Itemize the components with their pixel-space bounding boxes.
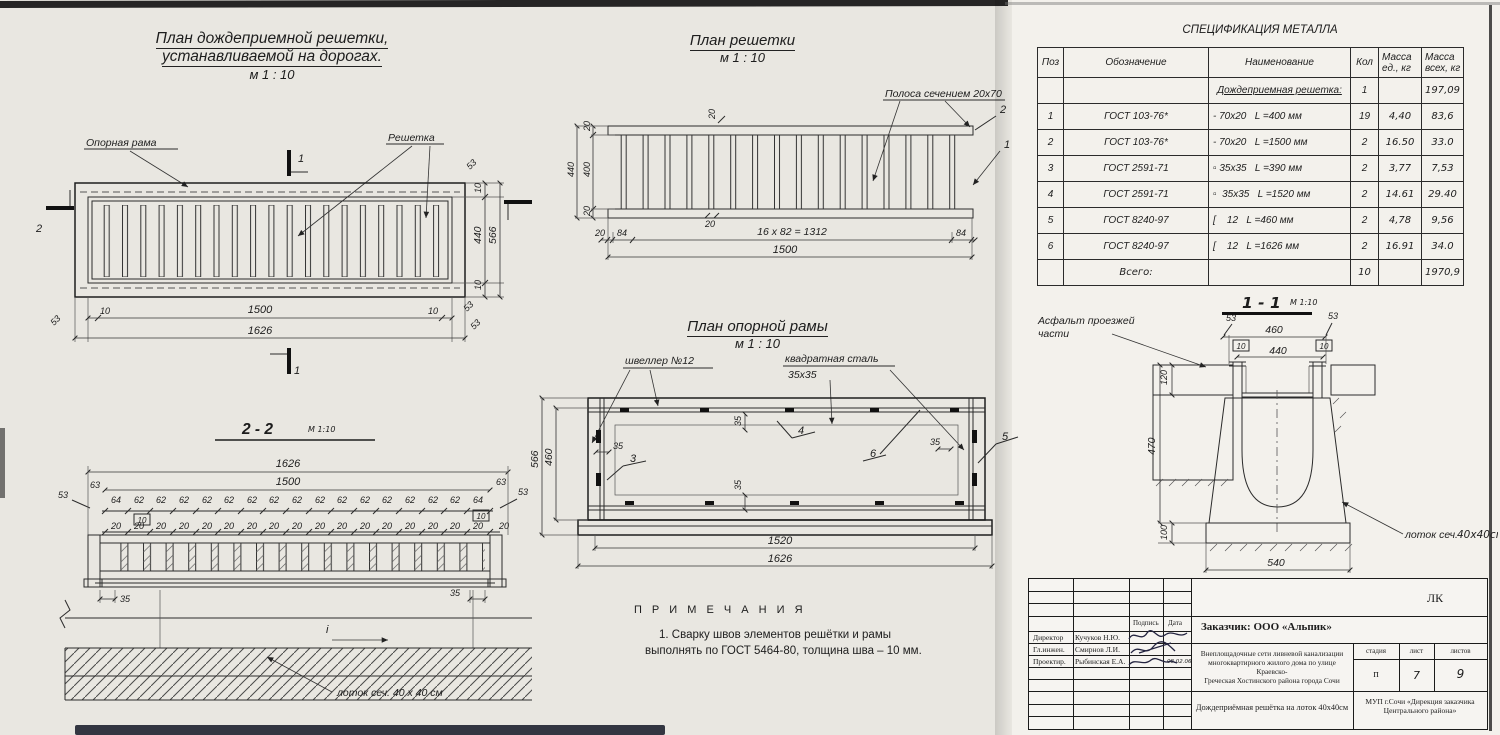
dim-label: 84 bbox=[956, 228, 966, 238]
title-line: План дождеприемной решетки, bbox=[156, 30, 389, 49]
spec-table: Поз Обозначение Наименование Кол Массаед… bbox=[1037, 47, 1464, 286]
dim-label: 20 bbox=[449, 521, 460, 531]
plan-grate-drawing: Полоса сечением 20x70 2 1 20 400 20 440 bbox=[555, 85, 1015, 280]
section-1-1-drawing: 1 - 1 М 1:10 Асфальт проезжей части 53 5… bbox=[1020, 290, 1498, 625]
dim-label: 62 bbox=[382, 495, 392, 505]
grate-geometry bbox=[608, 126, 973, 218]
dim-label: 566 bbox=[487, 226, 499, 244]
dim-label: 53 bbox=[1226, 313, 1236, 323]
person-name: Смирнов Л.И. bbox=[1075, 645, 1120, 654]
dim-label: 10 bbox=[477, 512, 486, 521]
drawing-sheet: План дождеприемной решетки, устанавливае… bbox=[0, 0, 1500, 735]
col-header: Обозначение bbox=[1064, 48, 1209, 78]
dim-label: 10 bbox=[428, 306, 438, 316]
title-line: План решетки bbox=[690, 32, 795, 51]
dim-label: 10 bbox=[1237, 342, 1246, 351]
col-header: Поз bbox=[1038, 48, 1064, 78]
org-name: МУП г.Сочи «Дирекция заказчикаЦентрально… bbox=[1355, 697, 1485, 715]
plan-frame-drawing: швеллер №12 квадратная сталь 35x35 bbox=[530, 318, 1030, 583]
ground-and-channel: i лоток сеч. 40 x 40 см bbox=[60, 590, 532, 700]
dim-label: 20 bbox=[110, 521, 121, 531]
table-row: 4ГОСТ 2591-71 ▫ 35x35 L =1520 мм 214.612… bbox=[1038, 182, 1464, 208]
sheets-value: 9 bbox=[1434, 667, 1487, 681]
dim-label: 1520 bbox=[768, 535, 793, 547]
role-label: Гл.инжен. bbox=[1033, 645, 1065, 654]
lotok-label: лоток сеч. 40 x 40 см bbox=[336, 687, 443, 699]
dim-label: 63 bbox=[90, 480, 100, 490]
dim-label: 20 bbox=[155, 521, 166, 531]
table-row: 3ГОСТ 2591-71 ▫ 35x35 L =390 мм 23,777,5… bbox=[1038, 156, 1464, 182]
dimensions-left: 120 470 100 bbox=[1146, 365, 1206, 543]
asphalt-label-l1: Асфальт проезжей bbox=[1037, 315, 1135, 327]
spec-title: СПЕЦИФИКАЦИЯ МЕТАЛЛА bbox=[1100, 24, 1420, 36]
sheets-header: листов bbox=[1434, 647, 1487, 655]
dim-label: 62 bbox=[224, 495, 234, 505]
dim-label: 53 bbox=[518, 487, 528, 497]
dim-label: 20 bbox=[704, 219, 715, 229]
dim-label: 20 bbox=[707, 109, 717, 120]
dim-label: 62 bbox=[337, 495, 347, 505]
frame-and-road bbox=[1153, 362, 1375, 398]
frame-geometry bbox=[578, 398, 992, 535]
scale-label: м 1 : 10 bbox=[720, 50, 765, 65]
shveller-label: швеллер №12 bbox=[625, 355, 694, 367]
table-header-row: Поз Обозначение Наименование Кол Массаед… bbox=[1038, 48, 1464, 78]
col-header: Массавсех, кг bbox=[1422, 48, 1464, 78]
sheet-code: ЛК bbox=[1427, 591, 1443, 606]
dim-label: 62 bbox=[360, 495, 370, 505]
section-title-text: 1 - 1 bbox=[1242, 294, 1281, 312]
reshetka-label: Решетка bbox=[388, 132, 435, 144]
dim-label: 20 bbox=[223, 521, 234, 531]
dim-label: 62 bbox=[292, 495, 302, 505]
oporna-rama-label: Опорная рама bbox=[86, 137, 157, 149]
channel-geometry bbox=[1153, 390, 1352, 551]
dim-35-pair: 35 35 bbox=[100, 588, 485, 604]
dim-label: 460 bbox=[543, 448, 555, 466]
dim-label: 53 bbox=[468, 317, 482, 331]
dim-label: 10 bbox=[473, 183, 483, 193]
dim-label: 20 bbox=[178, 521, 189, 531]
dim-label: 1626 bbox=[768, 553, 793, 565]
sign-header: Подпись bbox=[1133, 619, 1159, 627]
dim-label: 35 bbox=[930, 437, 941, 447]
asphalt-label: Асфальт проезжей части bbox=[1037, 315, 1206, 367]
table-row: 2ГОСТ 103-76* - 70x20 L =1500 мм 216.503… bbox=[1038, 130, 1464, 156]
lotok-label-text: лоток сеч. bbox=[1404, 529, 1458, 541]
section-mark-2: 2 bbox=[35, 223, 42, 235]
table-row: 5ГОСТ 8240-97 [ 12 L =460 мм 24,789,56 bbox=[1038, 208, 1464, 234]
scan-edge-top-right bbox=[1005, 2, 1500, 5]
title-block: Подпись Дата Директор Кучуков Н.Ю. Гл.ин… bbox=[1028, 578, 1488, 730]
person-name: Рыбинская Е.А. bbox=[1075, 657, 1125, 666]
dim-label: 20 bbox=[498, 521, 509, 531]
dim-label: 16 x 82 = 1312 bbox=[757, 226, 827, 238]
col-header: Кол bbox=[1351, 48, 1379, 78]
signatures bbox=[1125, 627, 1193, 671]
col-header: Массаед., кг bbox=[1379, 48, 1422, 78]
col-header: Наименование bbox=[1209, 48, 1351, 78]
role-label: Директор bbox=[1033, 633, 1063, 642]
dim-label: 400 bbox=[582, 162, 592, 177]
role-label: Проектир. bbox=[1033, 657, 1066, 666]
section-title: 2 - 2 М 1:10 bbox=[215, 421, 375, 440]
dim-label: 20 bbox=[381, 521, 392, 531]
dim-label: 20 bbox=[336, 521, 347, 531]
dim-label: 84 bbox=[617, 228, 627, 238]
table-row: 6ГОСТ 8240-97 [ 12 L =1626 мм 216.9134.0 bbox=[1038, 234, 1464, 260]
dim-label: 53 bbox=[464, 157, 478, 171]
leader-labels: швеллер №12 квадратная сталь 35x35 bbox=[592, 353, 964, 450]
date-header: Дата bbox=[1168, 619, 1182, 627]
dim-label: 1500 bbox=[276, 476, 301, 488]
section-mark-1: 1 bbox=[294, 365, 300, 377]
dim-label: 53 bbox=[1328, 311, 1338, 321]
dim-label: 62 bbox=[202, 495, 212, 505]
title-plan-grate: План решетки м 1 : 10 bbox=[640, 32, 845, 66]
dim-label: 35 bbox=[733, 415, 743, 426]
stage-value: п bbox=[1353, 669, 1399, 680]
dim-label: 1500 bbox=[248, 304, 273, 316]
dim-label: 20 bbox=[201, 521, 212, 531]
polosa-label: Полоса сечением 20x70 bbox=[885, 88, 1002, 100]
section-title: 1 - 1 М 1:10 bbox=[1222, 294, 1317, 315]
scale-label: м 1 : 10 bbox=[249, 67, 294, 82]
sheet-value: 7 bbox=[1399, 669, 1434, 682]
dim-label: 10 bbox=[1320, 342, 1329, 351]
dim-label: 35 bbox=[613, 441, 624, 451]
dim-label: 62 bbox=[428, 495, 438, 505]
dim-label: 10 bbox=[473, 280, 483, 290]
dim-label: 540 bbox=[1267, 557, 1285, 569]
dim-label: 35 bbox=[733, 479, 743, 490]
dim-label: 35 bbox=[120, 594, 131, 604]
title-plan-road: План дождеприемной решетки, устанавливае… bbox=[117, 30, 427, 84]
dim-label: 53 bbox=[48, 313, 62, 327]
asphalt-label-l2: части bbox=[1038, 328, 1069, 340]
dim-label: 20 bbox=[472, 521, 483, 531]
slope-label: i bbox=[326, 624, 329, 636]
person-name: Кучуков Н.Ю. bbox=[1075, 633, 1120, 642]
stage-header: стадия bbox=[1353, 647, 1399, 655]
dim-label: 440 bbox=[472, 226, 484, 244]
grate-section-geometry bbox=[84, 535, 506, 587]
section-title-text: 2 - 2 bbox=[241, 421, 273, 438]
scan-edge-left bbox=[0, 428, 5, 498]
dim-label: 20 bbox=[133, 521, 144, 531]
dim-label: 62 bbox=[156, 495, 166, 505]
dim-label: 1626 bbox=[248, 325, 273, 337]
dim-label: 460 bbox=[1265, 324, 1283, 336]
scan-edge-bottom bbox=[75, 725, 665, 735]
page-fold-shadow bbox=[995, 0, 1021, 735]
dim-label: 440 bbox=[566, 162, 576, 177]
dim-label: 20 bbox=[291, 521, 302, 531]
dim-label: 440 bbox=[1269, 345, 1287, 357]
kvadrat-label: квадратная сталь bbox=[785, 353, 878, 365]
dim-label: 35 bbox=[450, 588, 461, 598]
sheet-header: лист bbox=[1399, 647, 1434, 655]
dim-label: 64 bbox=[473, 495, 483, 505]
notes-heading: П Р И М Е Ч А Н И Я bbox=[600, 604, 840, 616]
title-line: устанавливаемой на дорогах. bbox=[162, 48, 382, 67]
kvadrat-size-label: 35x35 bbox=[788, 369, 817, 381]
doc-title: Дождеприёмная решётка на лоток 40x40см bbox=[1195, 703, 1349, 712]
table-total-row: Всего: 10 1970,9 bbox=[1038, 260, 1464, 286]
group-name: Дождеприемная решетка: bbox=[1209, 78, 1351, 104]
dim-label: 64 bbox=[111, 495, 121, 505]
dim-label: 62 bbox=[450, 495, 460, 505]
dim-label: 20 bbox=[246, 521, 257, 531]
note-line-1: 1. Сварку швов элементов решётки и рамы bbox=[659, 629, 891, 641]
dim-label: 63 bbox=[496, 477, 506, 487]
dim-label: 1500 bbox=[773, 244, 798, 256]
section-scale: М 1:10 bbox=[308, 425, 335, 434]
dim-label: 1626 bbox=[276, 458, 301, 470]
chain-20: 20 20 20 20 20 20 20 20 20 20 20 20 20 2… bbox=[102, 521, 509, 535]
dim-label: 20 bbox=[314, 521, 325, 531]
table-row: 1ГОСТ 103-76* - 70x20 L =400 мм 194,4083… bbox=[1038, 104, 1464, 130]
grate-plan-geometry bbox=[75, 183, 465, 297]
dim-label: 470 bbox=[1146, 437, 1158, 455]
section-2-2-drawing: 2 - 2 М 1:10 1626 1500 63 63 53 53 64 62… bbox=[30, 400, 570, 735]
project-name: Внеплощадочные сети ливневой канализации… bbox=[1195, 649, 1349, 685]
dim-label: 62 bbox=[179, 495, 189, 505]
dim-label: 566 bbox=[530, 450, 541, 468]
dim-label: 20 bbox=[268, 521, 279, 531]
scan-edge-top bbox=[0, 0, 1008, 8]
table-row: Дождеприемная решетка: 1 197,09 bbox=[1038, 78, 1464, 104]
sheet-right-edge bbox=[1489, 5, 1492, 731]
dim-label: 62 bbox=[405, 495, 415, 505]
total-label: Всего: bbox=[1064, 260, 1209, 286]
dim-label: 62 bbox=[134, 495, 144, 505]
callouts: 3 4 6 5 bbox=[607, 410, 1018, 480]
dim-label: 53 bbox=[461, 299, 475, 313]
dim-label: 53 bbox=[58, 490, 68, 500]
section-scale: М 1:10 bbox=[1290, 298, 1317, 307]
dim-label: 62 bbox=[315, 495, 325, 505]
dim-label: 20 bbox=[582, 206, 592, 217]
dim-label: 20 bbox=[359, 521, 370, 531]
weld-marks bbox=[596, 408, 977, 505]
dim-label: 20 bbox=[582, 121, 592, 132]
dim-label: 62 bbox=[269, 495, 279, 505]
dim-label: 20 bbox=[427, 521, 438, 531]
dim-label: 20 bbox=[404, 521, 415, 531]
dim-label: 120 bbox=[1159, 370, 1169, 385]
dim-label: 62 bbox=[247, 495, 257, 505]
dim-label: 100 bbox=[1159, 525, 1169, 540]
note-line-2: выполнять по ГОСТ 5464-80, толщина шва –… bbox=[645, 645, 922, 657]
dimensions-bottom: 540 bbox=[1206, 543, 1350, 573]
dim-label: 10 bbox=[100, 306, 110, 316]
dim-label: 20 bbox=[594, 228, 605, 238]
customer-label: Заказчик: ООО «Альпик» bbox=[1201, 621, 1332, 633]
section-mark-1: 1 bbox=[298, 153, 304, 165]
lotok-label: лоток сеч. 40x40см bbox=[1342, 502, 1498, 541]
plan-road-drawing: Опорная рама Решетка 1 1 2 bbox=[30, 130, 550, 400]
dimensions-top: 53 53 460 10 10 440 bbox=[1223, 311, 1338, 364]
